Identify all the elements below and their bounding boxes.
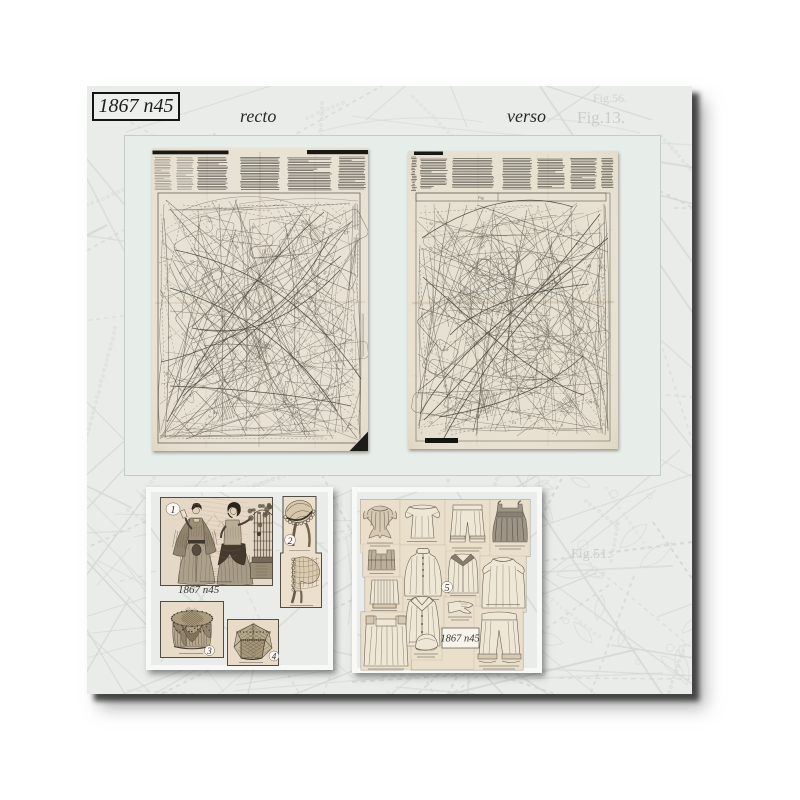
svg-text:Fig.56.: Fig.56.	[593, 91, 627, 105]
svg-text:2: 2	[288, 537, 293, 547]
svg-text:N.8: N.8	[213, 411, 218, 415]
svg-text:1: 1	[170, 505, 175, 516]
svg-text:Fig: Fig	[478, 195, 484, 200]
svg-text:1867 n45: 1867 n45	[440, 634, 479, 645]
svg-text:N.8: N.8	[265, 343, 270, 347]
svg-text:37: 37	[448, 396, 452, 400]
svg-text:12: 12	[429, 420, 433, 424]
svg-text:4: 4	[272, 652, 277, 662]
svg-text:F.2: F.2	[255, 381, 260, 386]
svg-text:F.2: F.2	[512, 421, 517, 425]
svg-text:Fig.51.: Fig.51.	[571, 547, 611, 562]
svg-text:24: 24	[348, 423, 352, 427]
svg-text:3: 3	[206, 646, 212, 656]
svg-text:37: 37	[342, 328, 346, 332]
svg-text:5: 5	[445, 583, 450, 594]
svg-text:Fig.13.: Fig.13.	[577, 108, 625, 127]
